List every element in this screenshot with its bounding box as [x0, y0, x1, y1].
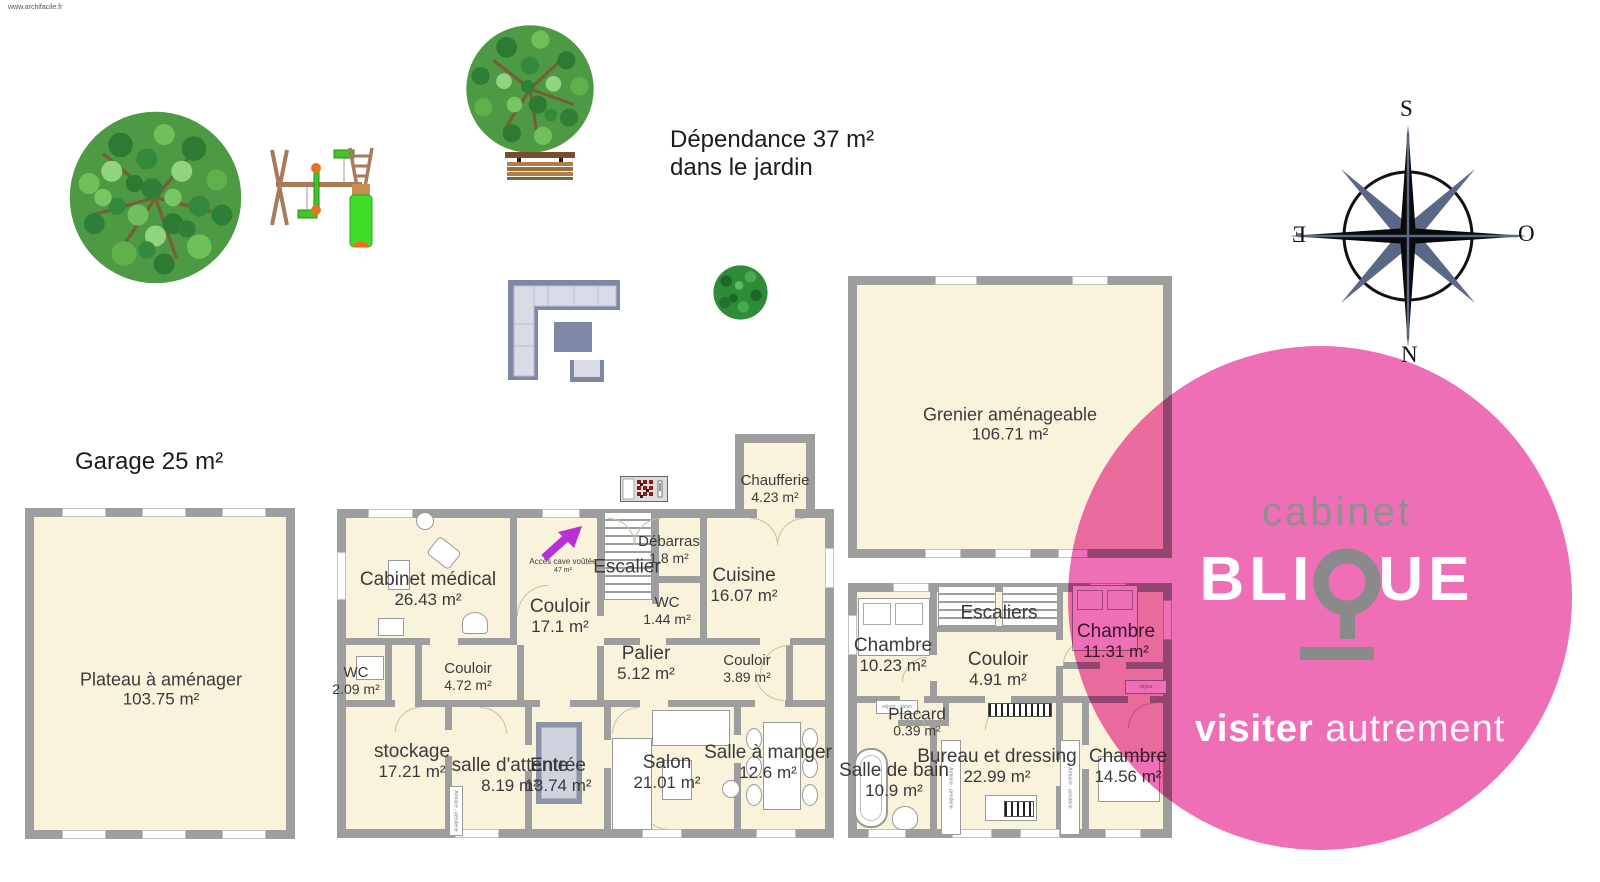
- cave-access-line2: 47 m²: [529, 567, 596, 575]
- dependance-line1: Dépendance 37 m²: [670, 126, 874, 154]
- wheelchair: [462, 612, 488, 634]
- room-label: WC2.09 m²: [332, 665, 379, 697]
- room-name: Débarras: [638, 534, 700, 551]
- room-label: Couloir17.1 m²: [530, 596, 590, 636]
- room-label: stockage17.21 m²: [374, 741, 450, 781]
- door-opening: [757, 505, 795, 518]
- logo-word-cabinet: cabinet: [1132, 490, 1542, 535]
- room-label: Plateau à aménager103.75 m²: [80, 669, 242, 708]
- room-label: Placard0.39 m²: [888, 705, 946, 740]
- chair: [802, 784, 818, 806]
- room-label: Couloir4.72 m²: [444, 661, 492, 693]
- wall: [604, 707, 611, 838]
- window: [756, 829, 796, 838]
- room-area: 16.07 m²: [710, 586, 777, 605]
- room-name: Plateau à aménager: [80, 669, 242, 689]
- room-label: Palier5.12 m²: [617, 643, 675, 683]
- garden-bench: [505, 152, 575, 180]
- sink: [378, 618, 404, 636]
- room-area: 0.39 m²: [888, 724, 946, 740]
- wall: [510, 509, 517, 645]
- logo-tagline: visiter autrement: [1130, 708, 1570, 751]
- wall: [707, 638, 760, 645]
- compass-west-label: O: [1518, 221, 1535, 247]
- room-area: 26.43 m²: [360, 590, 496, 609]
- window: [222, 508, 266, 517]
- window: [62, 830, 106, 839]
- room-area: 4.23 m²: [741, 490, 810, 506]
- room-name: Chaufferie: [741, 473, 810, 490]
- room-label: Chambre10.23 m²: [854, 635, 932, 675]
- wall: [1082, 703, 1089, 745]
- logo-q-glyph: [1318, 547, 1376, 643]
- wall: [517, 645, 524, 707]
- wall: [570, 700, 640, 707]
- room-name: Salon: [633, 752, 700, 773]
- compass-south-label: S: [1400, 96, 1413, 122]
- wall: [597, 509, 604, 705]
- window: [1105, 829, 1141, 838]
- wall: [790, 638, 834, 645]
- room-area: 12.6 m²: [704, 763, 832, 782]
- door-opening: [604, 740, 611, 768]
- grill-icon: [620, 476, 668, 502]
- room-label: Débarras1.8 m²: [638, 534, 700, 566]
- room-area: 13.74 m²: [524, 776, 591, 795]
- watermark: www.archifacile.fr: [8, 4, 62, 11]
- room-area: 4.72 m²: [444, 678, 492, 694]
- room-area: 22.99 m²: [917, 767, 1077, 786]
- logo-underline-bar: [1300, 647, 1374, 660]
- wall: [385, 638, 392, 707]
- room-name: Palier: [617, 643, 675, 664]
- cave-access-arrow: [536, 524, 584, 562]
- window: [222, 830, 266, 839]
- room-label: Salle à manger12.6 m²: [704, 742, 832, 782]
- window: [825, 548, 834, 588]
- window: [868, 829, 906, 838]
- toilet: [892, 806, 918, 830]
- chair: [746, 784, 762, 806]
- room-name: Placard: [888, 705, 946, 724]
- bush: [712, 264, 769, 321]
- tree-medium: [465, 24, 595, 154]
- room-label: Cuisine16.07 m²: [710, 565, 777, 605]
- room-area: 5.12 m²: [617, 664, 675, 683]
- room-area: 10.23 m²: [854, 656, 932, 675]
- playground-swing-set: [262, 140, 377, 252]
- window: [893, 583, 929, 592]
- window: [925, 549, 961, 558]
- room-area: 1.44 m²: [643, 612, 690, 628]
- room-name: WC: [643, 595, 690, 612]
- room-name: Grenier aménageable: [923, 404, 1097, 424]
- window: [142, 830, 186, 839]
- room-name: stockage: [374, 741, 450, 762]
- window: [368, 509, 413, 518]
- window: [1020, 829, 1060, 838]
- room-area: 4.91 m²: [968, 670, 1028, 689]
- wall: [458, 638, 517, 645]
- room-name: Couloir: [723, 653, 771, 670]
- piano-keyboard: [988, 703, 1052, 717]
- room-area: 3.89 m²: [723, 670, 771, 686]
- sofa: [652, 710, 730, 746]
- window: [1072, 276, 1108, 285]
- logo-brand-right: UE: [1378, 545, 1474, 615]
- room-area: 1.8 m²: [638, 551, 700, 567]
- logo-brand: BLI UE: [1132, 545, 1542, 643]
- room-name: Cuisine: [710, 565, 777, 586]
- window: [995, 549, 1031, 558]
- wardrobe-label: Armoire - penderie: [453, 790, 459, 831]
- window: [142, 508, 186, 517]
- room-name: Couloir: [968, 649, 1028, 670]
- room-label: Grenier aménageable106.71 m²: [923, 404, 1097, 443]
- room-label: Couloir3.89 m²: [723, 653, 771, 685]
- window: [337, 552, 346, 600]
- room-label: Chaufferie4.23 m²: [741, 473, 810, 505]
- dependance-annotation: Dépendance 37 m² dans le jardin: [670, 126, 874, 182]
- garage-annotation: Garage 25 m²: [75, 448, 223, 476]
- room-name: Cabinet médical: [360, 569, 496, 590]
- compass-rose: [1290, 125, 1526, 347]
- room-name: WC: [332, 665, 379, 682]
- room-area: 17.21 m²: [374, 762, 450, 781]
- tree-large: [68, 110, 243, 285]
- wall: [935, 626, 1060, 632]
- outdoor-lounge-set: [508, 280, 623, 382]
- room-label: Entrée13.74 m²: [524, 755, 591, 795]
- room-name: Entrée: [524, 755, 591, 776]
- wall: [668, 700, 755, 707]
- wall: [700, 509, 707, 645]
- compass-east-label: E: [1292, 222, 1306, 248]
- room-label: Escaliers: [960, 602, 1037, 623]
- room-area: 103.75 m²: [80, 690, 242, 709]
- room-label: Bureau et dressing22.99 m²: [917, 746, 1077, 786]
- room-name: Couloir: [444, 661, 492, 678]
- room-area: 21.01 m²: [633, 773, 700, 792]
- piano: [985, 795, 1037, 821]
- logo-tagline-bold: visiter: [1195, 708, 1314, 750]
- room-area: 17.1 m²: [530, 617, 590, 636]
- wall: [415, 645, 422, 707]
- wall: [1011, 696, 1063, 703]
- logo-tagline-light: autrement: [1325, 708, 1505, 750]
- room-area: 106.71 m²: [923, 425, 1097, 444]
- window: [542, 509, 580, 518]
- room-name: Salle à manger: [704, 742, 832, 763]
- ceiling-fan: [416, 512, 434, 530]
- wall: [924, 696, 985, 703]
- room-name: Couloir: [530, 596, 590, 617]
- room-label: Couloir4.91 m²: [968, 649, 1028, 689]
- window: [935, 276, 977, 285]
- room-name: Bureau et dressing: [917, 746, 1077, 767]
- round-stand: [722, 780, 740, 798]
- dependance-line2: dans le jardin: [670, 154, 874, 182]
- room-name: Escaliers: [960, 602, 1037, 623]
- room-area: 2.09 m²: [332, 682, 379, 698]
- room-name: Chambre: [854, 635, 932, 656]
- door-opening: [597, 616, 604, 646]
- room-label: WC1.44 m²: [643, 595, 690, 627]
- wall: [785, 700, 834, 707]
- window: [62, 508, 106, 517]
- window: [642, 829, 682, 838]
- room-label: Salon21.01 m²: [633, 752, 700, 792]
- logo-brand-left: BLI: [1199, 545, 1314, 615]
- room-label: Cabinet médical26.43 m²: [360, 569, 496, 609]
- floorplan-page: www.archifacile.fr: [0, 0, 1600, 882]
